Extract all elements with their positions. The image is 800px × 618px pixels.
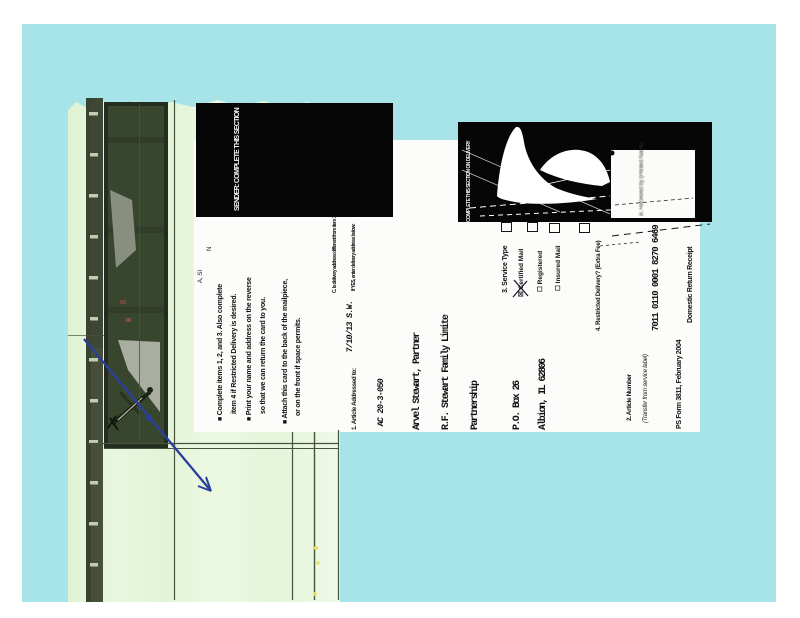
delivery-address-question: C. Is delivery address different from it… (333, 214, 338, 293)
addressee-line: P.O. Box 26 (513, 382, 523, 430)
form-id: PS Form 3811, February 2004 (676, 340, 683, 429)
restricted-delivery-label: 4. Restricted Delivery? (Extra Fee) (596, 241, 602, 331)
form-name: Domestic Return Receipt (687, 247, 694, 323)
sender-section-header: SENDER: COMPLETE THIS SECTION (234, 108, 241, 211)
tracking-number: 7011 0110 0001 8270 6469 (652, 225, 661, 331)
addressee-line: R.F. Stewart Family Limite (442, 316, 452, 430)
article-addressed-label: 1. Article Addressed to: (352, 368, 358, 430)
handwritten-date-note: 7/10/13 S.W. (346, 300, 355, 353)
delivery-address-question: If YES, enter delivery address below: (352, 224, 357, 291)
checkbox-icon (527, 222, 538, 232)
addressee-line: Partnership (471, 382, 481, 430)
sender-section-redaction-block (196, 103, 393, 217)
received-by-box (611, 150, 695, 218)
service-option-registered: ☐ Registered (538, 251, 545, 292)
instruction-line: so that we can return the card to you. (260, 297, 267, 414)
instruction-line: ■ Attach this card to the back of the ma… (282, 279, 289, 424)
text-fragment: A, SI (198, 270, 204, 283)
scanned-page: SENDER: COMPLETE THIS SECTION ■ Complete… (0, 0, 800, 618)
instruction-line: ■ Print your name and address on the rev… (246, 277, 253, 421)
delivery-section-header: COMPLETE THIS SECTION ON DELIVERY (467, 141, 472, 222)
instruction-line: item 4 if Restricted Delivery is desired… (231, 294, 238, 414)
received-by-label: B. Received by (Printed Name) (639, 142, 645, 216)
text-fragment: N (207, 247, 213, 251)
service-option-insured: ☐ Insured Mail (556, 245, 563, 291)
transfer-label: (Transfer from service label) (643, 354, 649, 423)
handwritten-code: AC 20-3-050 (377, 379, 386, 427)
instruction-line: or on the front if space permits. (295, 318, 302, 416)
addressee-line: Arvel Stewart, Partner (413, 333, 423, 430)
article-number-label: 2. Article Number (627, 374, 634, 421)
addressee-line: Albion, IL 62806 (539, 360, 549, 430)
instruction-line: ■ Complete items 1, 2, and 3. Also compl… (217, 284, 224, 421)
checkbox-icon (579, 223, 590, 233)
checkbox-icon (549, 223, 560, 233)
checkbox-icon (501, 222, 512, 232)
service-option-certified: ☒ Certified Mail (519, 249, 526, 297)
service-type-label: 3. Service Type (502, 246, 509, 293)
